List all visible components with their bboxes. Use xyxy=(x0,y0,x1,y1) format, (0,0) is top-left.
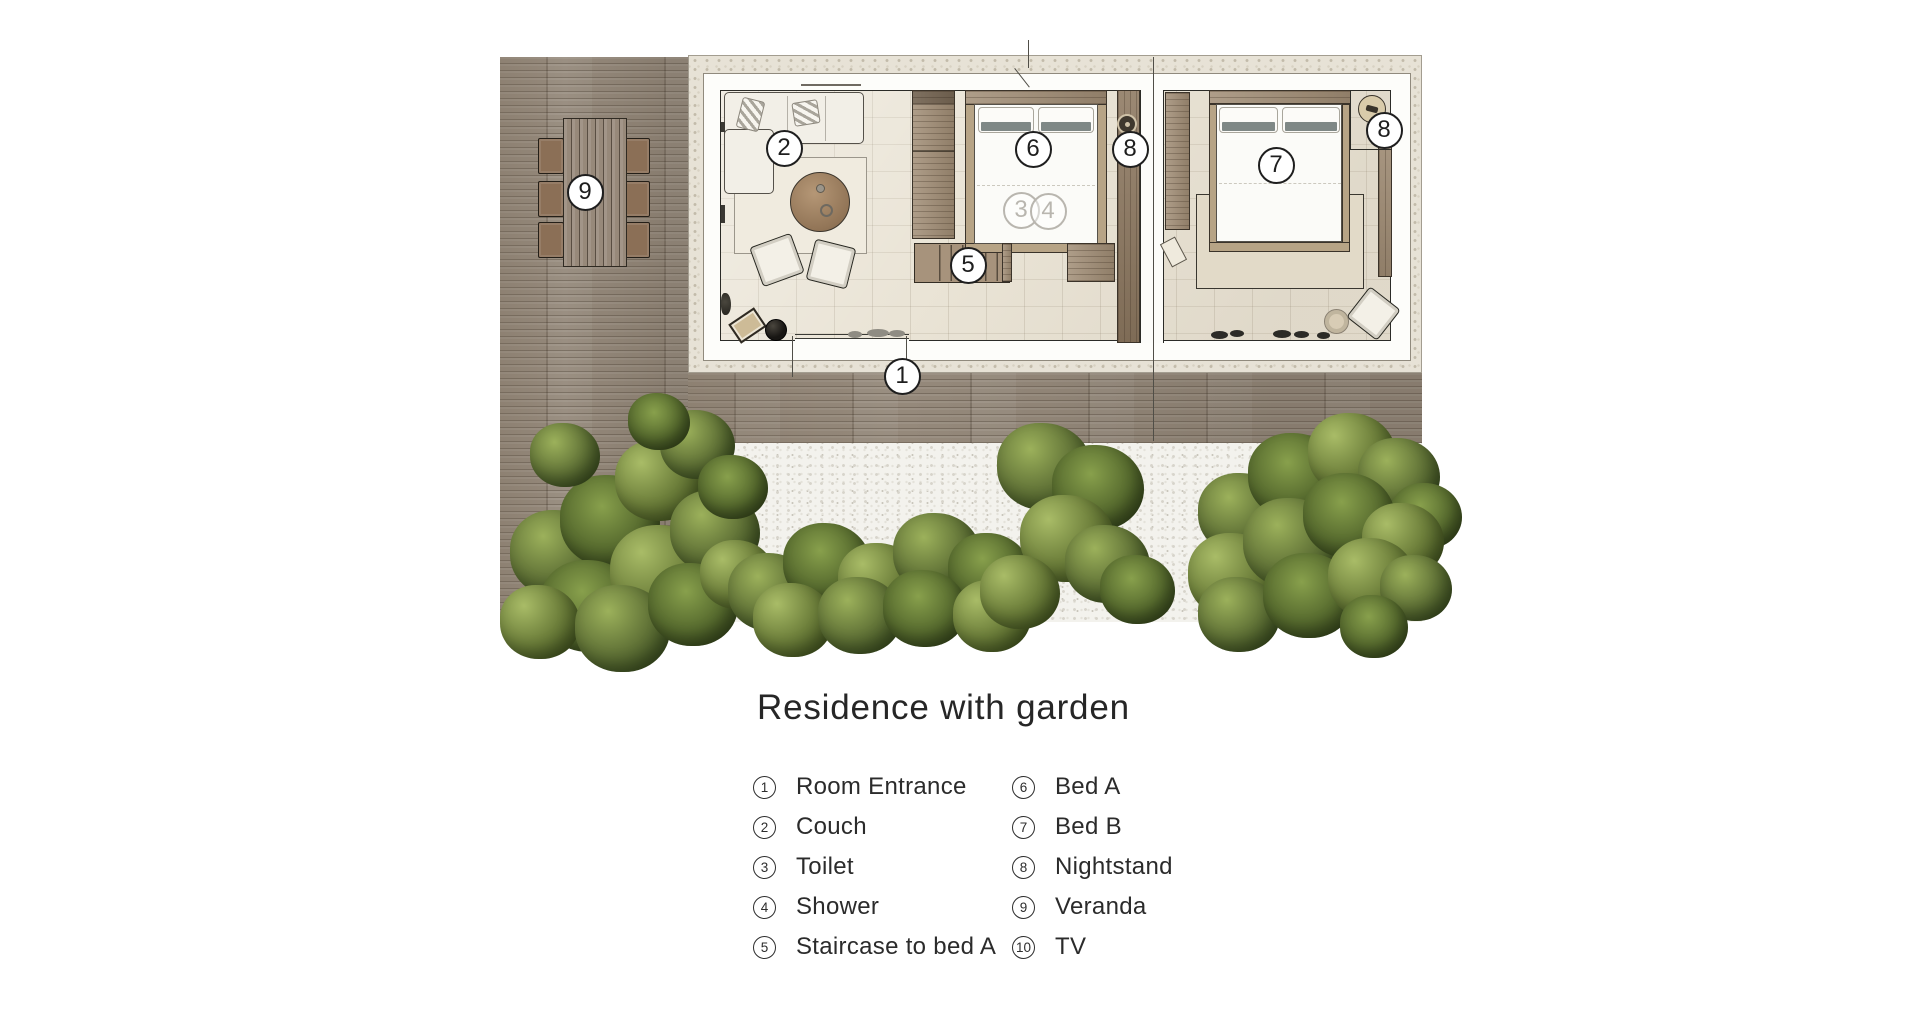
legend-item: 8Nightstand xyxy=(1012,847,1173,887)
legend-number-badge: 4 xyxy=(753,896,776,919)
plan-marker-8: 8 xyxy=(1366,112,1403,149)
plan-marker-1: 1 xyxy=(884,358,921,395)
legend-number-badge: 2 xyxy=(753,816,776,839)
legend-number-badge: 5 xyxy=(753,936,776,959)
legend-column: 6Bed A7Bed B8Nightstand9Veranda10TV xyxy=(1012,767,1173,967)
legend-item-label: Staircase to bed A xyxy=(796,933,996,961)
plan-marker-7: 7 xyxy=(1258,147,1295,184)
legend-item: 10TV xyxy=(1012,927,1173,967)
plan-marker-5: 5 xyxy=(950,247,987,284)
floor-plan-image: 9268783451 xyxy=(500,55,1423,622)
legend-number-badge: 1 xyxy=(753,776,776,799)
legend-item: 1Room Entrance xyxy=(753,767,1012,807)
legend-item-label: TV xyxy=(1055,933,1086,961)
legend-item-label: Couch xyxy=(796,813,867,841)
legend-number-badge: 9 xyxy=(1012,896,1035,919)
legend-item: 7Bed B xyxy=(1012,807,1173,847)
plan-markers: 9268783451 xyxy=(500,55,1423,622)
legend-item: 4Shower xyxy=(753,887,1012,927)
legend-item: 2Couch xyxy=(753,807,1012,847)
legend-item: 6Bed A xyxy=(1012,767,1173,807)
legend-item-label: Toilet xyxy=(796,853,854,881)
legend-number-badge: 8 xyxy=(1012,856,1035,879)
legend-number-badge: 6 xyxy=(1012,776,1035,799)
plan-title: Residence with garden xyxy=(757,688,1130,728)
plan-marker-8: 8 xyxy=(1112,131,1149,168)
legend-item-label: Shower xyxy=(796,893,879,921)
plan-marker-4: 4 xyxy=(1030,193,1067,230)
legend-number-badge: 7 xyxy=(1012,816,1035,839)
legend-item: 5Staircase to bed A xyxy=(753,927,1012,967)
legend-item-label: Nightstand xyxy=(1055,853,1173,881)
legend-item-label: Veranda xyxy=(1055,893,1147,921)
legend-number-badge: 10 xyxy=(1012,936,1035,959)
legend-number-badge: 3 xyxy=(753,856,776,879)
plan-marker-6: 6 xyxy=(1015,131,1052,168)
legend-column: 1Room Entrance2Couch3Toilet4Shower5Stair… xyxy=(753,767,1012,967)
plan-marker-9: 9 xyxy=(567,174,604,211)
plan-marker-2: 2 xyxy=(766,130,803,167)
page-background: { "title": "Residence with garden", "leg… xyxy=(0,0,1920,1013)
legend-item-label: Bed B xyxy=(1055,813,1122,841)
legend: 1Room Entrance2Couch3Toilet4Shower5Stair… xyxy=(753,767,1173,967)
legend-item: 9Veranda xyxy=(1012,887,1173,927)
legend-item-label: Bed A xyxy=(1055,773,1121,801)
legend-item: 3Toilet xyxy=(753,847,1012,887)
legend-item-label: Room Entrance xyxy=(796,773,967,801)
